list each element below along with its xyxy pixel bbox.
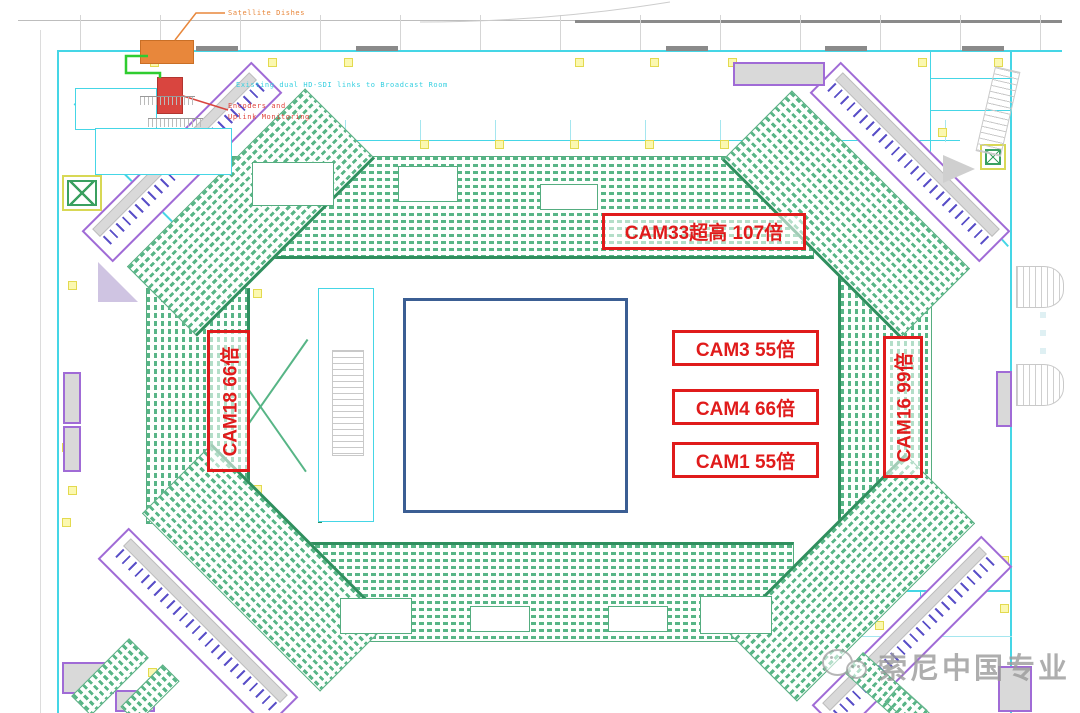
cam4-label-box: CAM4 66倍 bbox=[672, 389, 819, 425]
vomitory-box bbox=[700, 596, 772, 634]
cam18-label-box: CAM18 66倍 bbox=[207, 330, 250, 472]
wall-line bbox=[57, 50, 59, 713]
elevator bbox=[62, 175, 102, 211]
cam1-label: CAM1 55倍 bbox=[696, 447, 795, 474]
external-stair bbox=[1016, 364, 1064, 406]
bay-stub bbox=[495, 120, 496, 142]
vomitory-box bbox=[608, 606, 668, 632]
vomitory-box bbox=[398, 166, 458, 202]
bubble-eye bbox=[830, 656, 833, 659]
roof-tick bbox=[800, 15, 801, 50]
office-room bbox=[95, 128, 232, 175]
link-node bbox=[1040, 348, 1046, 354]
bubble-eye bbox=[857, 665, 860, 668]
side-room bbox=[996, 371, 1012, 427]
cam4-label: CAM4 66倍 bbox=[696, 394, 795, 421]
hd-sdi-note: Existing dual HD-SDI links to Broadcast … bbox=[236, 80, 448, 91]
roof-tick bbox=[960, 15, 961, 50]
column-marker bbox=[1000, 604, 1009, 613]
stair-hatch bbox=[332, 350, 364, 456]
column-marker bbox=[938, 128, 947, 137]
office-room bbox=[75, 88, 157, 130]
column-marker bbox=[720, 140, 729, 149]
link-node bbox=[1040, 312, 1046, 318]
equipment-table bbox=[148, 118, 203, 127]
vomitory-box bbox=[252, 162, 334, 206]
speech-bubble-small bbox=[846, 660, 867, 679]
external-stair bbox=[1016, 266, 1064, 308]
cam1-label-box: CAM1 55倍 bbox=[672, 442, 819, 478]
watermark-text: 索尼中国专业 bbox=[878, 645, 1070, 687]
column-marker bbox=[68, 486, 77, 495]
vomitory-box bbox=[470, 606, 530, 632]
cam33-label-box: CAM33超高 107倍 bbox=[602, 213, 806, 250]
roof-tick bbox=[880, 15, 881, 50]
court-outline bbox=[403, 298, 628, 513]
cam3-label: CAM3 55倍 bbox=[696, 335, 795, 362]
cam16-label-box: CAM16 99倍 bbox=[883, 336, 923, 478]
column-marker bbox=[918, 58, 927, 67]
cam3-label-box: CAM3 55倍 bbox=[672, 330, 819, 366]
link-node bbox=[1040, 330, 1046, 336]
column-marker bbox=[875, 621, 884, 630]
vomitory-box bbox=[540, 184, 598, 210]
wall-line bbox=[962, 46, 1004, 51]
wall-line bbox=[930, 52, 931, 152]
wall-line bbox=[666, 46, 708, 51]
column-marker bbox=[62, 518, 71, 527]
column-marker bbox=[495, 140, 504, 149]
wall-line bbox=[825, 46, 867, 51]
roof-tick bbox=[720, 15, 721, 50]
cam18-label: CAM18 66倍 bbox=[215, 346, 242, 456]
column-marker bbox=[253, 289, 262, 298]
bay-stub bbox=[645, 120, 646, 142]
bay-stub bbox=[420, 120, 421, 142]
encoders-label: Encoders and Uplink Monitoring bbox=[228, 101, 310, 123]
column-marker bbox=[650, 58, 659, 67]
bubble-eye bbox=[851, 665, 854, 668]
leader-lines bbox=[0, 0, 420, 140]
column-marker bbox=[575, 58, 584, 67]
elevator-car-icon bbox=[67, 180, 97, 206]
arena-floor-plan: Satellite Dishes Existing dual HD-SDI li… bbox=[0, 0, 1080, 713]
roof-tick bbox=[1040, 15, 1041, 50]
bay-stub bbox=[570, 120, 571, 142]
column-marker bbox=[68, 281, 77, 290]
encoders-label-line1: Encoders and bbox=[228, 101, 310, 112]
encoders-label-line2: Uplink Monitoring bbox=[228, 112, 310, 123]
cam16-label: CAM16 99倍 bbox=[890, 352, 917, 462]
bubble-eye bbox=[839, 656, 842, 659]
cam33-label: CAM33超高 107倍 bbox=[625, 218, 783, 245]
side-room bbox=[63, 372, 81, 424]
bay-stub bbox=[720, 120, 721, 142]
column-marker bbox=[645, 140, 654, 149]
roof-curve bbox=[420, 0, 670, 24]
wechat-icon bbox=[822, 646, 868, 686]
satellite-dishes-label: Satellite Dishes bbox=[228, 8, 305, 19]
column-marker bbox=[420, 140, 429, 149]
vomitory-box bbox=[340, 598, 412, 634]
column-marker bbox=[570, 140, 579, 149]
equipment-table bbox=[140, 96, 195, 105]
watermark: 索尼中国专业 bbox=[822, 645, 1070, 687]
top-room bbox=[733, 62, 825, 86]
side-room bbox=[63, 426, 81, 472]
